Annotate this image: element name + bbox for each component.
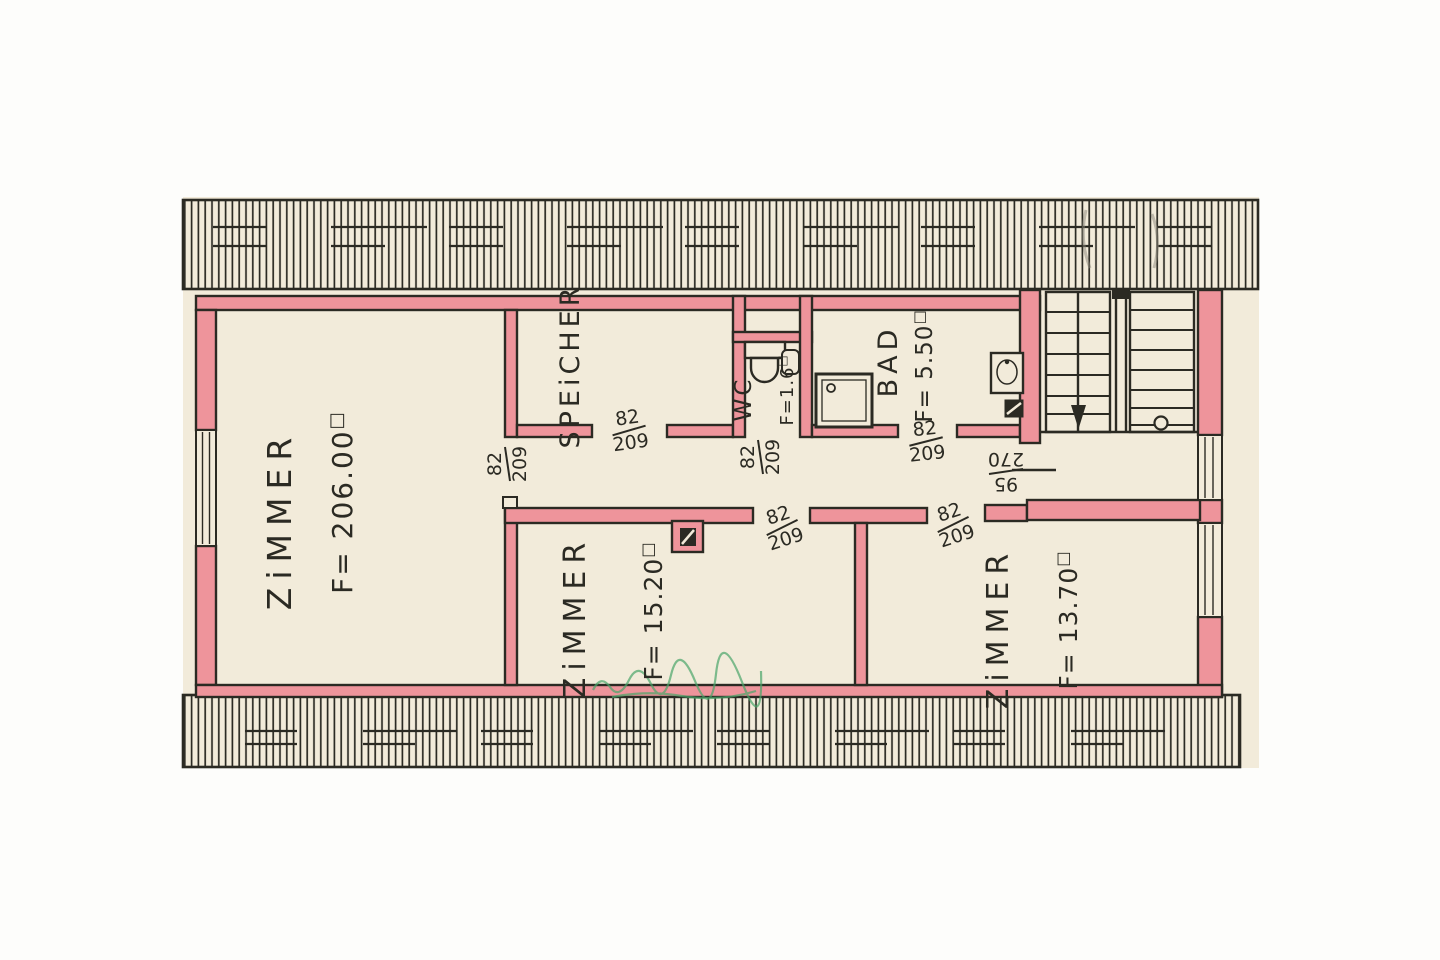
- wall-left-lower: [196, 546, 216, 685]
- corridor-wall-c: [985, 505, 1027, 521]
- wall-right-mid: [1198, 500, 1222, 523]
- wc-right-wall: [800, 296, 812, 437]
- svg-text:82: 82: [737, 445, 759, 469]
- room-area-zimmer-left: F= 206.00□: [326, 410, 359, 594]
- wall-right-upper: [1198, 290, 1222, 435]
- washbasin: [991, 353, 1023, 393]
- shower-tray: [816, 374, 872, 427]
- roof-hatch-top: [183, 200, 1258, 289]
- svg-text:82: 82: [614, 406, 641, 431]
- svg-text:209: 209: [509, 446, 531, 482]
- room-label-zimmer-left: ZiMMER: [260, 430, 299, 611]
- window-left: [196, 430, 216, 546]
- stair-divider-cap: [1112, 290, 1130, 299]
- wall-left-upper: [196, 310, 216, 430]
- stair-newel-post: [1155, 417, 1168, 430]
- window-right-upper: [1198, 435, 1222, 500]
- door-jamb-square: [503, 497, 517, 508]
- speicher-left-wall: [505, 310, 517, 437]
- room-area-zimmer-mid: F= 15.20□: [638, 541, 668, 680]
- speicher-bottom-wall-b: [667, 425, 733, 437]
- window-right-lower: [1198, 523, 1222, 617]
- zimmer-divider-mid: [855, 523, 867, 685]
- floor-plan-drawing: 82 209 82 209 82 209 82 209 82 209 82 20…: [0, 0, 1440, 960]
- corridor-wall-a: [505, 508, 753, 523]
- svg-text:82: 82: [484, 452, 506, 476]
- svg-text:209: 209: [908, 441, 946, 467]
- svg-text:95: 95: [994, 473, 1018, 495]
- room-label-speicher: SPEiCHER: [555, 284, 586, 449]
- room-area-bad: F= 5.50□: [910, 309, 938, 422]
- zimmer-divider-left: [505, 508, 517, 685]
- svg-text:270: 270: [988, 448, 1024, 470]
- room-label-zimmer-mid: ZiMMER: [558, 536, 593, 698]
- floor-plan-scan: 82 209 82 209 82 209 82 209 82 209 82 20…: [0, 0, 1440, 960]
- chimney: [672, 521, 703, 552]
- corridor-wall-d: [1027, 500, 1200, 520]
- room-label-wc: WC: [731, 377, 757, 422]
- corridor-wall-b: [810, 508, 927, 523]
- wall-top: [196, 296, 1040, 310]
- room-area-zimmer-right: F= 13.70□: [1053, 550, 1083, 689]
- bad-bottom-wall-b: [957, 425, 1020, 437]
- room-label-bad: BAD: [873, 325, 904, 398]
- svg-text:209: 209: [762, 439, 784, 475]
- radiator: [1005, 400, 1023, 417]
- roof-hatch-bottom: [183, 695, 1240, 767]
- room-label-zimmer-right: ZiMMER: [981, 547, 1016, 709]
